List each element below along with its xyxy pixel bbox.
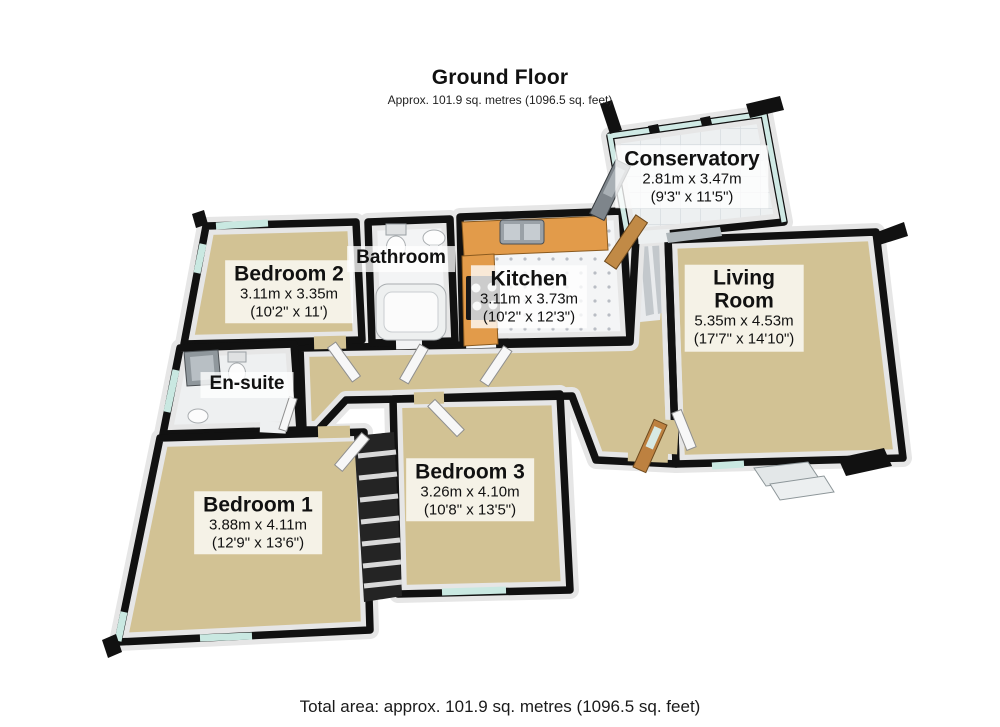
room-dims-imperial: (9'3" x 11'5")	[624, 188, 759, 206]
bedroom3-doorway	[414, 392, 444, 405]
window	[442, 590, 506, 592]
window	[216, 223, 268, 226]
room-name: Bedroom 3	[415, 460, 525, 483]
label-bathroom: Bathroom	[347, 246, 455, 272]
label-ensuite: En-suite	[201, 372, 294, 398]
plan-header: Ground Floor Approx. 101.9 sq. metres (1…	[0, 66, 1000, 107]
room-dims-metric: 2.81m x 3.47m	[624, 170, 759, 188]
room-name: Bedroom 1	[203, 493, 313, 516]
room-dims-metric: 3.11m x 3.35m	[234, 285, 344, 303]
room-name: En-suite	[210, 374, 285, 395]
room-dims-metric: 3.88m x 4.11m	[203, 516, 313, 534]
bathroom-sink	[423, 230, 445, 246]
ensuite-sink	[188, 409, 208, 423]
floorplan-page: Ground Floor Approx. 101.9 sq. metres (1…	[0, 0, 1000, 727]
floorplan-drawing	[0, 0, 1000, 727]
window	[712, 464, 744, 466]
label-living-room: Living Room 5.35m x 4.53m (17'7" x 14'10…	[685, 265, 804, 352]
room-name: Kitchen	[480, 267, 578, 290]
window	[200, 636, 252, 638]
kitchen-sink-basin	[504, 224, 520, 240]
room-dims-imperial: (17'7" x 14'10")	[694, 331, 795, 349]
conservatory-doorway	[638, 229, 671, 244]
total-area-text: Total area: approx. 101.9 sq. metres (10…	[0, 697, 1000, 717]
bedroom1-doorway	[318, 426, 350, 439]
room-dims-imperial: (12'9" x 13'6")	[203, 534, 313, 552]
kitchen-sink-basin	[524, 224, 540, 240]
room-dims-imperial: (10'2" x 11')	[234, 303, 344, 321]
room-dims-metric: 3.26m x 4.10m	[415, 483, 525, 501]
label-bedroom2: Bedroom 2 3.11m x 3.35m (10'2" x 11')	[225, 260, 353, 323]
room-name: Bedroom 2	[234, 262, 344, 285]
room-name: Bathroom	[356, 248, 446, 269]
room-name: Living Room	[701, 267, 787, 313]
room-dims-imperial: (10'2" x 12'3")	[480, 308, 578, 326]
room-name: Conservatory	[624, 147, 759, 170]
label-conservatory: Conservatory 2.81m x 3.47m (9'3" x 11'5"…	[615, 145, 768, 208]
label-bedroom3: Bedroom 3 3.26m x 4.10m (10'8" x 13'5")	[406, 458, 534, 521]
page-title: Ground Floor	[0, 66, 1000, 90]
toilet-cistern	[228, 352, 246, 362]
room-dims-metric: 3.11m x 3.73m	[480, 290, 578, 308]
room-dims-metric: 5.35m x 4.53m	[694, 313, 795, 331]
label-kitchen: Kitchen 3.11m x 3.73m (10'2" x 12'3")	[471, 265, 587, 328]
toilet-cistern	[386, 224, 406, 235]
room-dims-imperial: (10'8" x 13'5")	[415, 501, 525, 519]
label-bedroom1: Bedroom 1 3.88m x 4.11m (12'9" x 13'6")	[194, 491, 322, 554]
page-subtitle: Approx. 101.9 sq. metres (1096.5 sq. fee…	[0, 93, 1000, 107]
bathtub-inner	[384, 292, 438, 332]
